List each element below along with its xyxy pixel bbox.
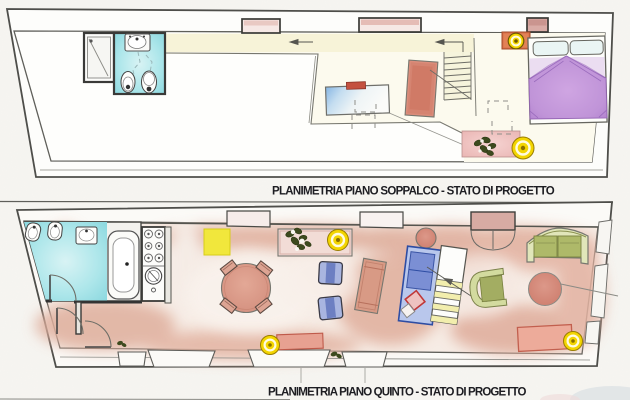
svg-text:PLANIMETRIA PIANO SOPPALCO - S: PLANIMETRIA PIANO SOPPALCO - STATO DI PR… bbox=[272, 186, 555, 198]
svg-text:PLANIMETRIA PIANO QUINTO - STA: PLANIMETRIA PIANO QUINTO - STATO DI PROG… bbox=[268, 387, 526, 399]
